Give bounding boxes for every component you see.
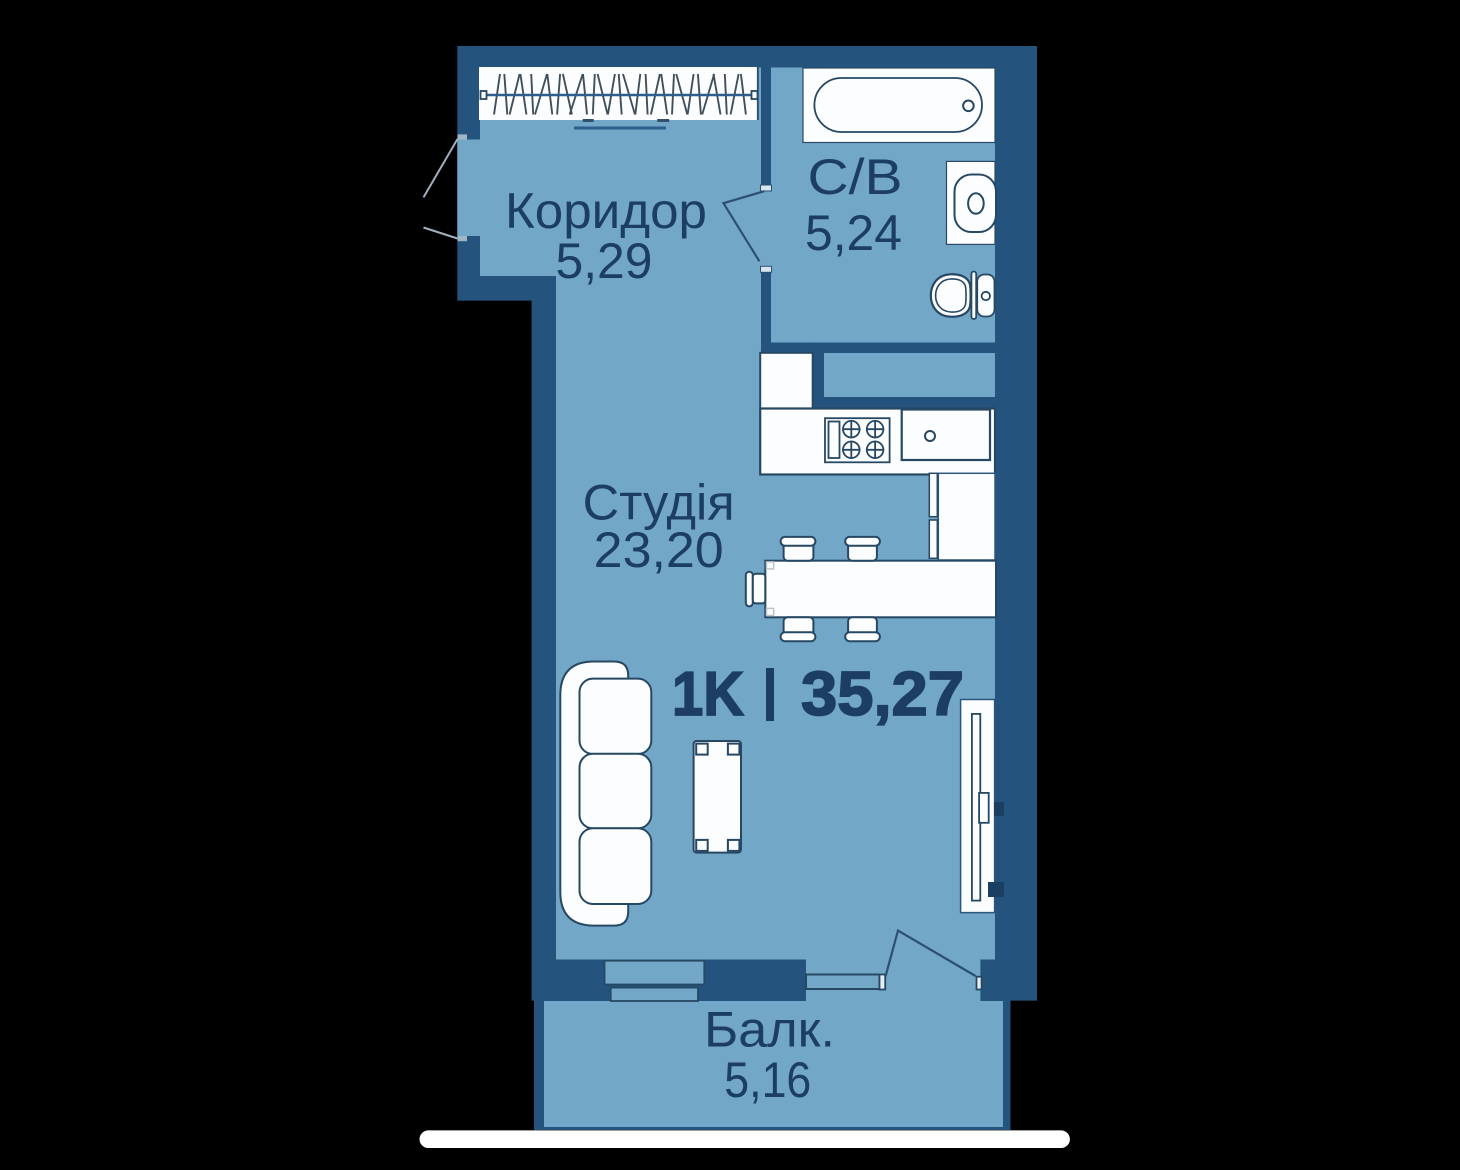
svg-text:1K: 1K (672, 660, 744, 729)
svg-text:Балк.: Балк. (704, 1002, 835, 1058)
svg-text:23,20: 23,20 (594, 522, 724, 578)
svg-text:5,29: 5,29 (556, 233, 653, 289)
svg-text:5,24: 5,24 (805, 205, 902, 261)
svg-text:5,16: 5,16 (724, 1052, 811, 1108)
svg-text:Коридор: Коридор (505, 183, 707, 239)
svg-text:С/В: С/В (808, 149, 903, 205)
svg-text:35,27: 35,27 (801, 660, 964, 729)
